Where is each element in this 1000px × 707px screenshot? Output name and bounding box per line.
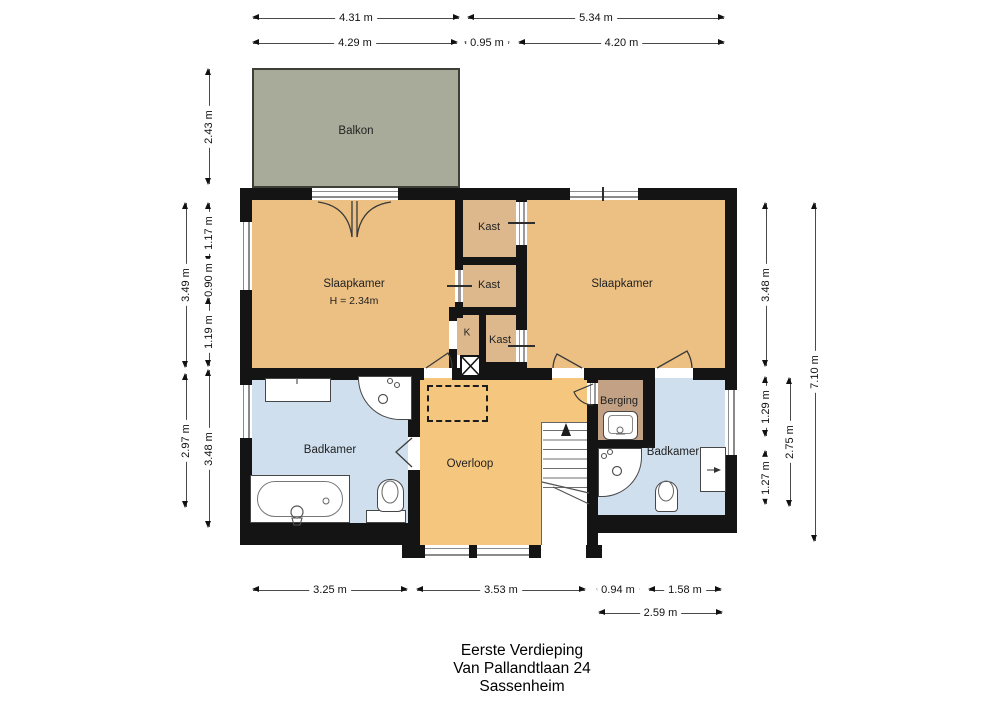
dim-top-5: 4.20 m [518, 37, 725, 49]
dim-top-2: 5.34 m [467, 12, 725, 24]
floorplan-page: Balkon Slaapkamer H = 2.34m Kast Kast K … [0, 0, 1000, 707]
room-label-slaapkamer-left-height: H = 2.34m [330, 295, 379, 307]
title-floor: Eerste Verdieping [453, 642, 591, 660]
room-label-slaapkamer-right: Slaapkamer [591, 278, 652, 290]
title-city: Sassenheim [453, 678, 591, 696]
room-label-berging: Berging [600, 395, 638, 407]
dim-left-balkon: 2.43 m [203, 68, 215, 185]
dim-bottom-3: 0.94 m [596, 584, 640, 596]
dim-right-1: 3.48 m [760, 202, 772, 367]
room-label-slaapkamer-left: Slaapkamer [323, 278, 384, 290]
dim-bottom-5: 2.59 m [598, 607, 723, 619]
dim-top-3: 4.29 m [252, 37, 458, 49]
dim-left-inner-3: 1.19 m [203, 297, 215, 367]
dim-left-outer-1: 3.49 m [180, 202, 192, 368]
room-label-k: K [464, 328, 471, 339]
room-label-kast-bot: Kast [489, 334, 511, 346]
room-label-overloop: Overloop [447, 458, 494, 470]
dim-bottom-4: 1.58 m [648, 584, 722, 596]
room-label-balkon: Balkon [338, 125, 373, 137]
dim-right-4: 2.75 m [784, 377, 796, 507]
dim-bottom-1: 3.25 m [252, 584, 408, 596]
dim-bottom-2: 3.53 m [416, 584, 586, 596]
room-label-badkamer-left: Badkamer [304, 444, 356, 456]
title-address: Van Pallandtlaan 24 [453, 660, 591, 678]
plan-linework [0, 0, 1000, 707]
dim-right-3: 1.27 m [760, 450, 772, 505]
room-label-kast-mid: Kast [478, 279, 500, 291]
dim-left-outer-2: 2.97 m [180, 373, 192, 508]
room-label-badkamer-right: Badkamer [647, 446, 699, 458]
room-label-kast-top: Kast [478, 221, 500, 233]
dim-left-inner-4: 3.48 m [203, 369, 215, 528]
dim-right-5: 7.10 m [809, 202, 821, 542]
dim-left-inner-1: 1.17 m [203, 202, 215, 263]
plan-title: Eerste Verdieping Van Pallandtlaan 24 Sa… [453, 642, 591, 696]
dim-left-inner-2: 0.90 m [203, 266, 215, 294]
dim-top-1: 4.31 m [252, 12, 460, 24]
dim-right-2: 1.29 m [760, 376, 772, 437]
dim-top-4: 0.95 m [464, 37, 510, 49]
